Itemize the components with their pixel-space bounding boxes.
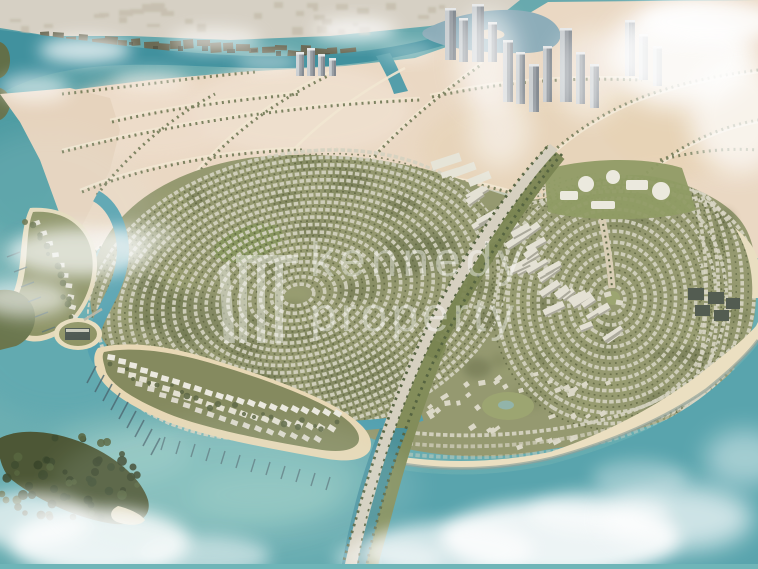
svg-text:property: property	[310, 289, 518, 342]
svg-text:kennedy: kennedy	[310, 234, 526, 287]
